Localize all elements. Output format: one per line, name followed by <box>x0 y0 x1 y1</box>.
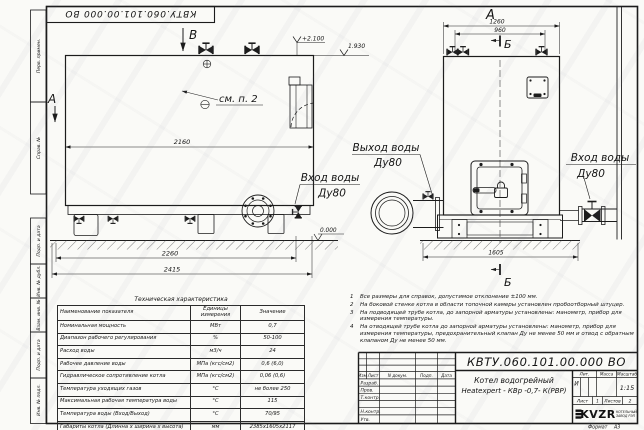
section-label-a-left: А <box>47 92 56 106</box>
sheets-label: Листов <box>603 399 621 405</box>
outlet-label: Выход воды Ду80 <box>352 142 433 197</box>
note-item: 3 На подводящей трубе котла, до запорной… <box>350 310 634 324</box>
safety-valve-icon <box>244 43 259 54</box>
callout-text: см. п. 2 <box>219 94 258 105</box>
col-header-ndoc: N докум. <box>388 373 407 378</box>
dim-front-base-width: 1605 <box>488 250 503 257</box>
elevation-fittings: +2.100 <box>302 36 324 43</box>
tech-cell-name: Максимальная рабочая температура воды <box>58 396 191 409</box>
elevation-roof: 1.930 <box>348 43 365 50</box>
logo-sub-line2: ЗАВОД РЭП <box>616 414 636 418</box>
callout-see-item-2: см. п. 2 <box>182 91 263 109</box>
tech-cell-value: не более 250 <box>241 383 305 396</box>
inlet-pipe-assembly <box>560 7 622 240</box>
tech-cell-name: Гидравлическое сопротивление котла <box>58 371 191 384</box>
title-block: КВТУ.060.101.00.000 ВО Котел водогрейный… <box>358 353 637 430</box>
tech-cell-units: °С <box>191 409 241 422</box>
tech-col-value: Значение <box>241 306 305 321</box>
elevation-marks: +2.100 1.930 0.000 <box>293 36 369 241</box>
lit-value: И <box>574 381 579 388</box>
tech-row: Диапазон рабочего регулирования%50-100 <box>58 333 305 346</box>
sheet-label: Лист <box>576 399 589 405</box>
tech-col-units: Единицы измерения <box>191 306 241 321</box>
tech-cell-value: 0,6 (6,0) <box>241 358 305 371</box>
tech-cell-value: 2385х1605х2117 <box>241 421 305 430</box>
tech-cell-units: м3/ч <box>191 346 241 359</box>
burner-flange <box>242 195 274 227</box>
dim-front-width: 1260 <box>489 19 504 26</box>
tech-row: Расход водым3/ч24 <box>58 346 305 359</box>
note-item: 4 На отводящей трубе котла до запорной а… <box>350 324 634 344</box>
outlet-pipe-assembly <box>371 192 444 234</box>
sheet-value: 1 <box>596 399 599 405</box>
tech-cell-units: % <box>191 333 241 346</box>
furnace-door <box>471 161 528 215</box>
roof-port-symbol <box>203 60 211 68</box>
note-number: 1 <box>350 294 360 301</box>
section-label-b-top: Б <box>504 38 512 51</box>
drawing-sheet: Перв. примен. Справ. № Подп. и дата Инв.… <box>0 0 644 430</box>
col-header-podp: Подп. <box>420 373 433 378</box>
outlet-label-dn: Ду80 <box>373 157 402 169</box>
tech-cell-value: 115 <box>241 396 305 409</box>
kvzr-logo: KVZR КОТЕЛЬНЫЙ ЗАВОД РЭП <box>576 408 638 421</box>
inlet-right-title: Вход воды <box>571 152 630 164</box>
tech-row: Максимальная рабочая температура воды°С1… <box>58 396 305 409</box>
note-number: 2 <box>350 302 360 309</box>
tech-characteristics: Техническая характеристика Наименование … <box>57 296 305 430</box>
tech-row: Температура уходящих газов°Сне более 250 <box>58 383 305 396</box>
section-label-b-bottom: Б <box>504 276 512 289</box>
inlet-right-label: Вход воды Ду80 <box>566 152 636 199</box>
margin-label-podp-data-1: Подп. и дата <box>36 225 42 256</box>
tech-cell-value: 70/95 <box>241 409 305 422</box>
tech-cell-name: Номинальная мощность <box>58 321 191 334</box>
tech-cell-units: °С <box>191 396 241 409</box>
note-text: На боковой стенке котла в области топочн… <box>360 302 634 309</box>
tech-header-row: Наименование показателя Единицы измерени… <box>58 306 305 321</box>
sig-row-utv: Утв. <box>361 417 370 423</box>
section-label-v-top: В <box>189 28 197 42</box>
inlet-right-dn: Ду80 <box>576 168 605 180</box>
inlet-valve-icon <box>293 205 302 218</box>
logo-text: KVZR <box>580 408 616 421</box>
mass-header: Масса <box>600 372 614 377</box>
drain-tap-icon <box>185 216 196 224</box>
section-markers: А В <box>47 28 197 122</box>
roof-valve-icon <box>446 47 458 56</box>
tech-cell-units: МПа (кгс/см2) <box>191 358 241 371</box>
tech-cell-units: °С <box>191 383 241 396</box>
tech-table: Наименование показателя Единицы измерени… <box>57 305 305 430</box>
scale-header: Масштаб <box>617 372 637 377</box>
dim-overall-length: 2415 <box>164 266 181 274</box>
margin-label-vzam-inv: Взам. инв. № <box>36 299 42 330</box>
title-block-doc-number: КВТУ.060.101.00.000 ВО <box>467 355 626 369</box>
elevation-ground: 0.000 <box>320 228 337 234</box>
drain-tap-icon <box>108 216 119 224</box>
margin-label-perv-primen: Перв. примен. <box>36 39 42 74</box>
inlet-left-dn: Ду80 <box>317 188 346 200</box>
safety-valve-icon <box>198 43 213 54</box>
col-header-data: Дата <box>440 373 452 378</box>
tech-row: Номинальная мощностьМВт0,7 <box>58 321 305 334</box>
tech-cell-value: 0,06 (0,6) <box>241 371 305 384</box>
tech-row: Температура воды (Вход/Выход)°С70/95 <box>58 409 305 422</box>
inlet-left-label: Вход воды Ду80 <box>295 172 360 204</box>
margin-label-inv-dubl: Инв. № дубл. <box>36 265 42 296</box>
notes-list: 1 Все размеры для справок, допустимое от… <box>350 294 634 346</box>
tech-cell-name: Расход воды <box>58 346 191 359</box>
sig-row-razrab: Разраб. <box>361 380 379 386</box>
note-text: На подводящей трубе котла, до запорной а… <box>360 310 634 324</box>
product-name-line2: Heatexpert - КВр -0,7- К(РВР) <box>462 387 567 395</box>
note-text: Все размеры для справок, допустимое откл… <box>360 294 634 301</box>
lit-header: Лит. <box>579 372 590 377</box>
tech-cell-name: Температура воды (Вход/Выход) <box>58 409 191 422</box>
tech-cell-name: Габариты котла (Длинна х ширина х высота… <box>58 421 191 430</box>
note-text: На отводящей трубе котла до запорной арм… <box>360 324 634 344</box>
inspection-hatch <box>527 77 548 98</box>
dim-front-inner-width: 960 <box>494 27 506 34</box>
margin-label-inv-podl: Инв. № подл. <box>36 384 42 416</box>
sig-row-nkontr: Н.контр. <box>361 409 381 415</box>
tech-cell-value: 0,7 <box>241 321 305 334</box>
dim-body-length: 2160 <box>174 138 191 146</box>
doc-number-top: КВТУ.060.101.00.000 ВО <box>65 8 197 18</box>
tech-cell-units: МПа (кгс/см2) <box>191 371 241 384</box>
logo-sub-line1: КОТЕЛЬНЫЙ <box>616 409 637 414</box>
tech-cell-name: Диапазон рабочего регулирования <box>58 333 191 346</box>
tech-cell-units: МВт <box>191 321 241 334</box>
note-number: 4 <box>350 324 360 344</box>
col-header-izm: Изм <box>358 373 367 378</box>
format-label: Формат <box>588 425 608 430</box>
format-value: А3 <box>613 425 620 430</box>
dim-base-length: 2260 <box>162 250 179 258</box>
sig-row-prov: Пров. <box>361 388 374 394</box>
col-header-list: Лист <box>367 373 379 378</box>
tech-cell-value: 50-100 <box>241 333 305 346</box>
left-view-dimensions: 2160 2260 2415 <box>50 138 338 278</box>
note-number: 3 <box>350 310 360 324</box>
roof-valve-icon <box>535 47 547 56</box>
product-name-line1: Котел водогрейный <box>474 376 554 385</box>
drain-tap-icon <box>74 216 85 224</box>
margin-label-sprav-no: Справ. № <box>36 137 42 160</box>
outlet-label-title: Выход воды <box>353 142 420 154</box>
margin-label-podp-data-2: Подп. и дата <box>36 339 42 370</box>
scale-value: 1:15 <box>620 384 635 392</box>
tech-row: Рабочее давление водыМПа (кгс/см2)0,6 (6… <box>58 358 305 371</box>
tech-col-name: Наименование показателя <box>58 306 191 321</box>
tech-row: Гидравлическое сопротивление котлаМПа (к… <box>58 371 305 384</box>
tech-cell-name: Температура уходящих газов <box>58 383 191 396</box>
tech-cell-units: мм <box>191 421 241 430</box>
tech-table-title: Техническая характеристика <box>57 296 305 303</box>
roof-valve-icon <box>457 47 469 56</box>
note-item: 2 На боковой стенке котла в области топо… <box>350 302 634 309</box>
tech-row: Габариты котла (Длинна х ширина х высота… <box>58 421 305 430</box>
padlock-icon <box>495 182 508 197</box>
note-item: 1 Все размеры для справок, допустимое от… <box>350 294 634 301</box>
inlet-left-title: Вход воды <box>301 172 360 184</box>
sheets-value: 2 <box>629 399 632 405</box>
sig-row-tkontr: Т.контр. <box>361 395 381 401</box>
tech-cell-name: Рабочее давление воды <box>58 358 191 371</box>
tech-cell-value: 24 <box>241 346 305 359</box>
